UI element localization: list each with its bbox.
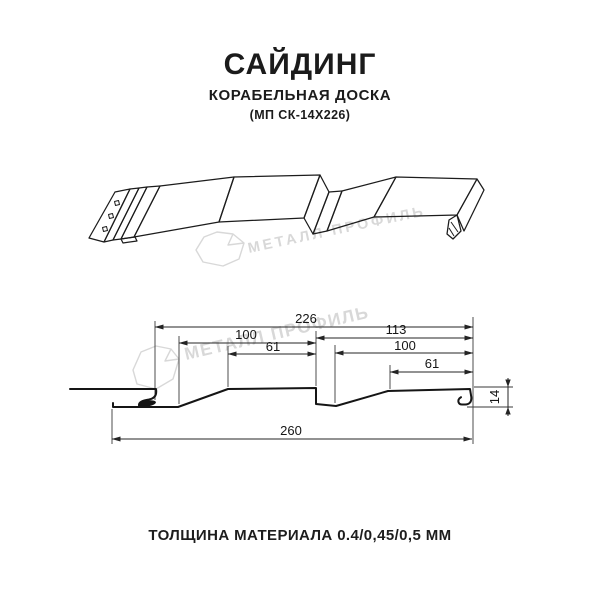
dimension-label: 113 — [386, 322, 407, 337]
dimension-right-plank-flat: 61 — [390, 356, 473, 372]
brand-watermark-text: МЕТАЛЛ ПРОФИЛЬ — [182, 302, 371, 364]
profile-outline — [70, 388, 471, 408]
brand-logo-icon — [196, 232, 244, 266]
dimension-label: 14 — [487, 390, 502, 404]
brand-watermark-lower: МЕТАЛЛ ПРОФИЛЬ — [133, 302, 371, 389]
technical-drawing: МЕТАЛЛ ПРОФИЛЬ — [0, 0, 600, 600]
dimension-profile-height: 14 — [487, 378, 511, 416]
dimension-label: 100 — [235, 327, 257, 342]
thickness-note: ТОЛЩИНА МАТЕРИАЛА 0.4/0,45/0,5 ММ — [0, 527, 600, 544]
dimension-overall-width: 260 — [112, 423, 472, 439]
brand-logo-icon — [133, 346, 179, 389]
page: САЙДИНГ КОРАБЕЛЬНАЯ ДОСКА (МП СК-14Х226) — [0, 0, 600, 600]
dimension-label: 61 — [266, 339, 280, 354]
dimension-right-plank-width: 100 — [335, 338, 473, 353]
extension-lines — [112, 317, 513, 444]
profile-3d-drawing: МЕТАЛЛ ПРОФИЛЬ — [89, 175, 484, 266]
dimension-label: 100 — [394, 338, 416, 353]
dimension-label: 61 — [425, 356, 439, 371]
dimension-label: 226 — [295, 311, 317, 326]
dimension-total-cover-width: 226 — [155, 311, 473, 327]
dimension-label: 260 — [280, 423, 302, 438]
